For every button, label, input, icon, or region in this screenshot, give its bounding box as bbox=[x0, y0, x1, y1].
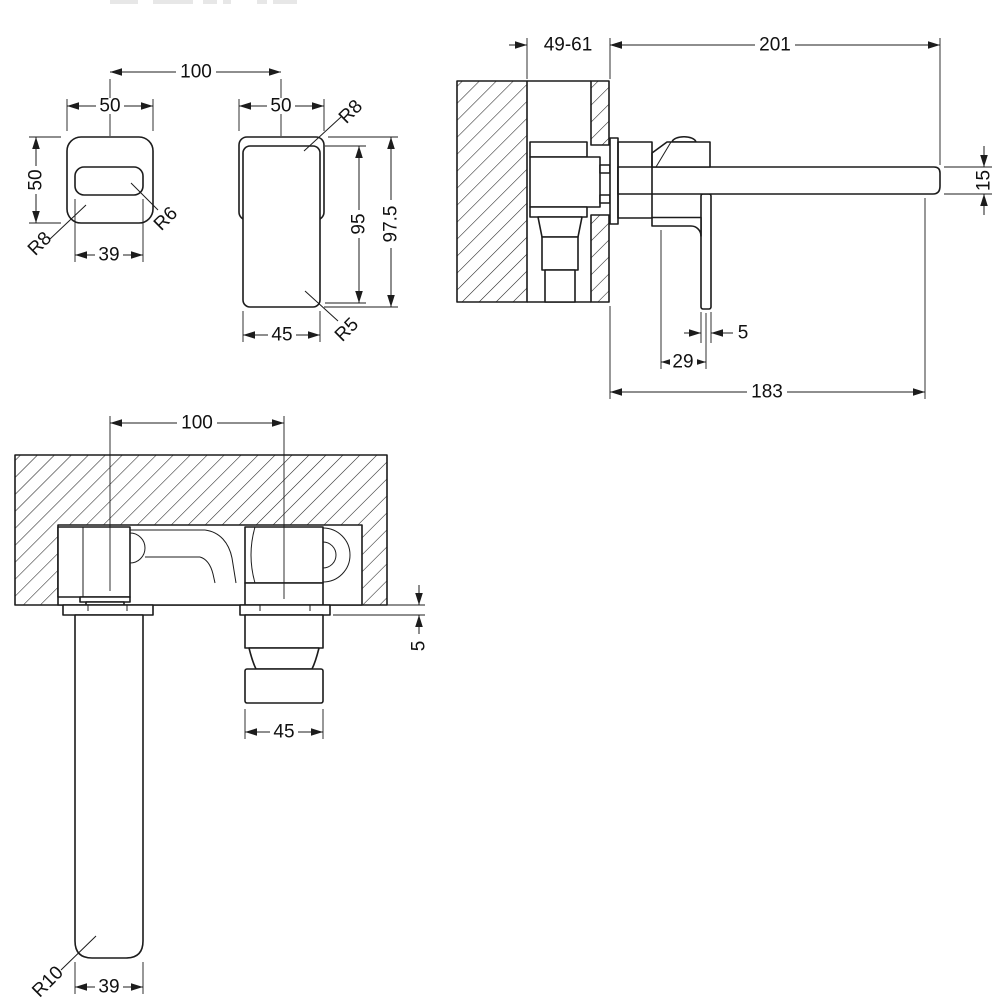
wall-hatch-strip-lower bbox=[591, 215, 609, 302]
view-handle-front: 50 95 97.5 45 R8 R5 bbox=[239, 96, 402, 347]
dim-lever-thickness: 5 bbox=[738, 323, 749, 344]
svg-text:97.5: 97.5 bbox=[381, 206, 402, 243]
wall-hatch-main bbox=[457, 81, 527, 302]
dim-handle-body-height: 95 bbox=[349, 210, 370, 238]
dim-spout-width-front: 39 bbox=[98, 977, 119, 998]
trim-plate-edge bbox=[610, 138, 618, 224]
svg-text:15: 15 bbox=[974, 170, 995, 191]
svg-text:R8: R8 bbox=[335, 96, 367, 128]
dim-outlet-projection: 183 bbox=[751, 382, 783, 403]
dim-spout-thickness: 15 bbox=[974, 168, 995, 194]
dim-spout-plate-width: 50 bbox=[99, 96, 120, 117]
wall-hatch-strip-upper bbox=[591, 81, 609, 145]
dim-handle-total-height: 97.5 bbox=[381, 200, 402, 248]
svg-text:R6: R6 bbox=[150, 203, 182, 235]
dim-centre-distance-front: 100 bbox=[181, 413, 213, 434]
dim-centre-distance: 100 bbox=[180, 62, 212, 83]
svg-text:R8: R8 bbox=[24, 228, 56, 260]
dim-wall-depth-range: 49-61 bbox=[544, 35, 593, 56]
radius-handle-top-corner: R8 bbox=[335, 96, 367, 128]
svg-text:R10: R10 bbox=[28, 962, 67, 1000]
radius-spout-end: R10 bbox=[28, 962, 67, 1000]
radius-outlet-corner: R6 bbox=[150, 203, 182, 235]
handle-body-outline bbox=[243, 146, 320, 307]
lever-bar bbox=[701, 194, 711, 309]
dim-plate-thickness: 5 bbox=[409, 641, 430, 652]
dim-handle-width-front: 45 bbox=[273, 722, 294, 743]
svg-text:50: 50 bbox=[26, 169, 47, 190]
svg-text:95: 95 bbox=[349, 213, 370, 234]
dim-handle-body-width: 45 bbox=[271, 325, 292, 346]
view-front-section: 100 5 45 39 R10 bbox=[15, 413, 430, 1000]
handle-front-section bbox=[240, 605, 330, 703]
drawing-page: 100 50 50 39 R8 R6 bbox=[0, 0, 1000, 1000]
radius-plate-corner: R8 bbox=[24, 228, 56, 260]
cropped-header-smudges bbox=[110, 0, 297, 4]
svg-text:5: 5 bbox=[409, 641, 430, 652]
view-side-section: 49-61 201 15 5 29 183 bbox=[457, 35, 995, 403]
spout-front bbox=[63, 605, 153, 958]
dim-outlet-width: 39 bbox=[98, 245, 119, 266]
lever-neck bbox=[652, 218, 701, 237]
spout-outlet-opening bbox=[75, 167, 143, 195]
spout-tube-side bbox=[618, 167, 940, 194]
dim-lever-offset: 29 bbox=[672, 352, 693, 373]
dim-spout-plate-height: 50 bbox=[26, 166, 47, 194]
dim-handle-plate-width: 50 bbox=[270, 96, 291, 117]
lever-head bbox=[652, 142, 710, 167]
dim-spout-reach: 201 bbox=[759, 35, 791, 56]
technical-drawing-canvas: 100 50 50 39 R8 R6 bbox=[0, 0, 1000, 1000]
